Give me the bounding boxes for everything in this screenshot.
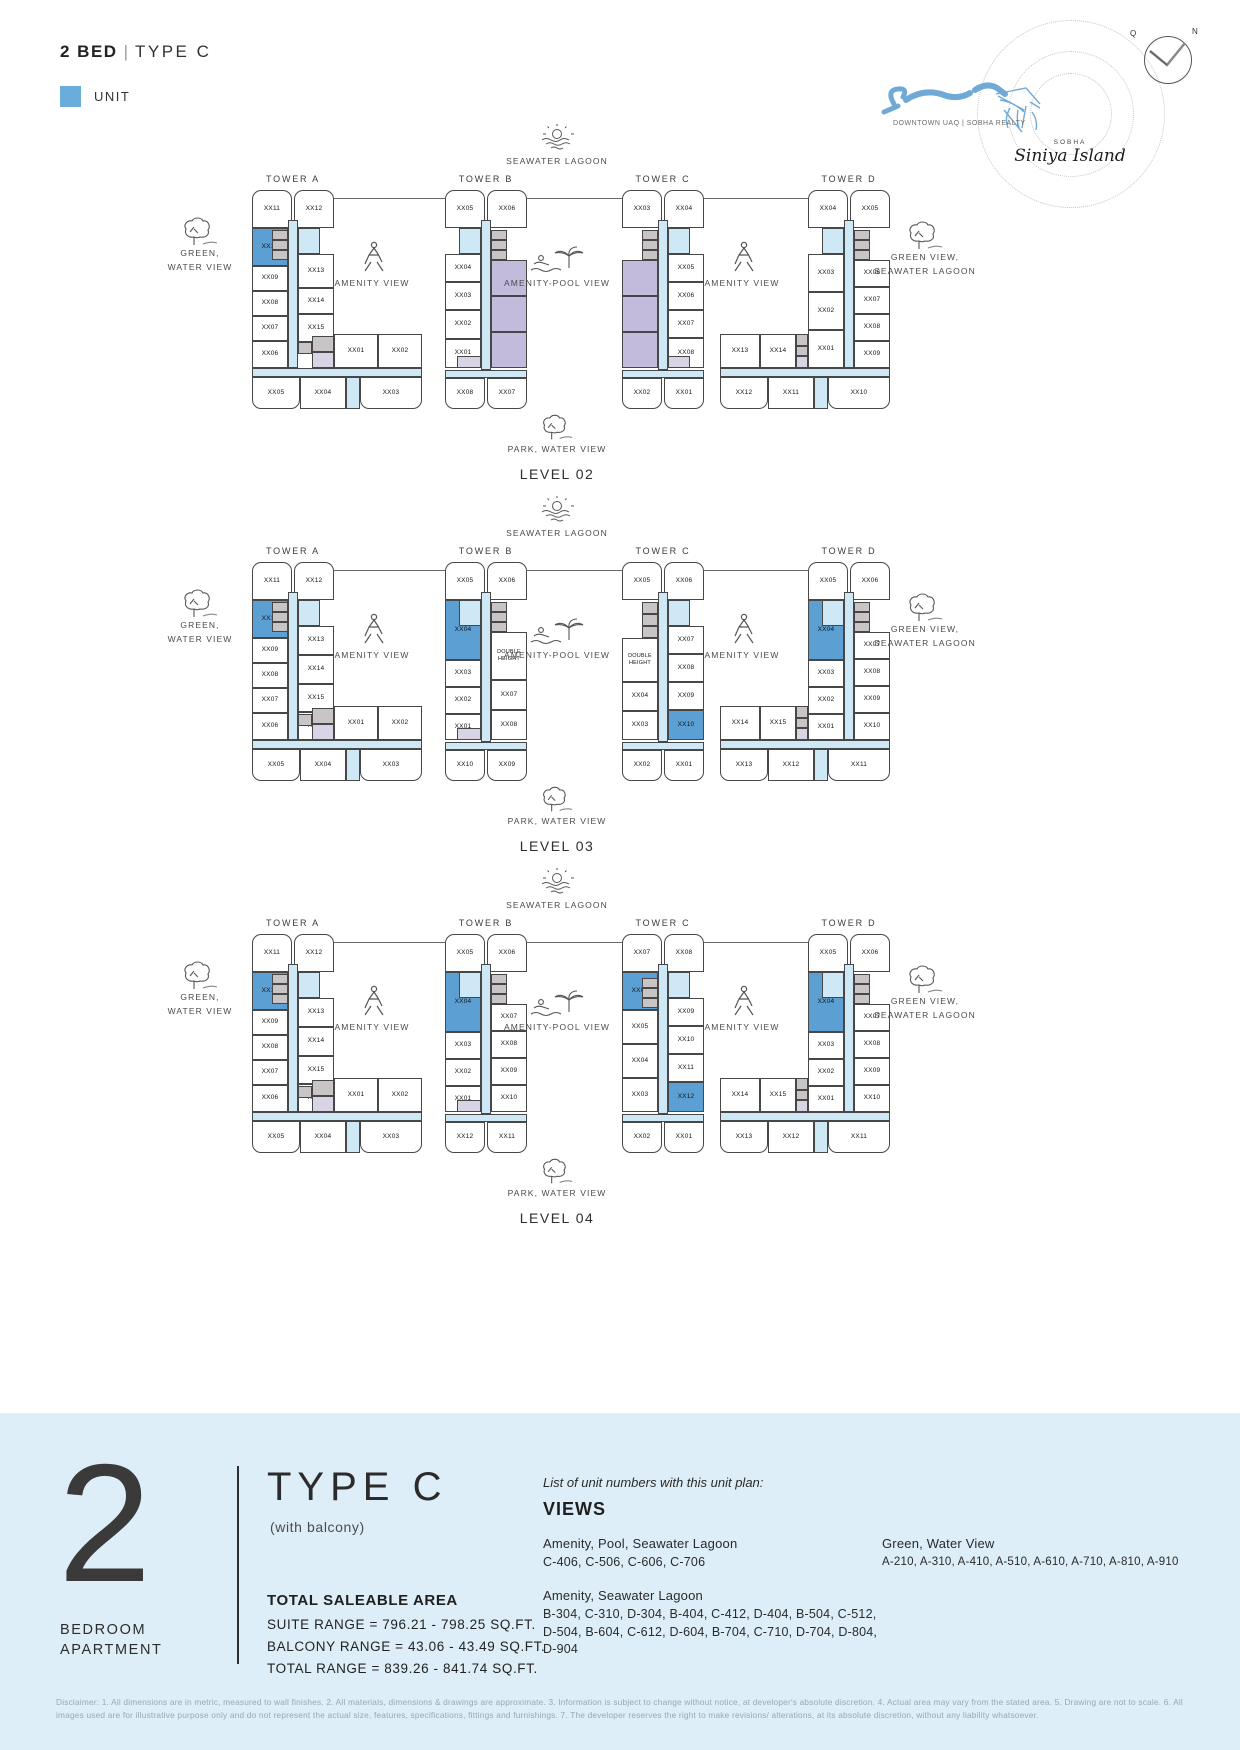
amenity-view-icon — [357, 984, 387, 1023]
unit-cell: XX02 — [808, 1059, 844, 1086]
amenity-view-label: AMENITY VIEW — [705, 1020, 780, 1034]
view-group-units: B-304, C-310, D-304, B-404, C-412, D-404… — [543, 1606, 888, 1659]
service-cell — [312, 1096, 334, 1112]
unit-cell: XX10 — [854, 713, 890, 740]
green-seawater-lagoon-view-label: GREEN VIEW, SEAWATER LAGOON — [874, 622, 976, 651]
service-cell — [642, 240, 658, 250]
unit-cell: XX10 — [491, 1085, 527, 1112]
bedroom-label-line1: BEDROOM — [60, 1622, 146, 1638]
unit-cell: XX05 — [622, 562, 662, 600]
unit-cell: XX02 — [378, 334, 422, 368]
amenity-view-label: AMENITY VIEW — [705, 276, 780, 290]
service-cell — [642, 978, 658, 988]
service-cell — [796, 1100, 808, 1112]
green-seawater-lagoon-view-label: GREEN VIEW, SEAWATER LAGOON — [874, 994, 976, 1023]
unit-cell: XX09 — [854, 1058, 890, 1085]
corridor-cell — [622, 742, 704, 750]
unit-cell: XX05 — [252, 377, 300, 409]
unit-cell: XX04 — [300, 1121, 346, 1153]
amenity-view-label: AMENITY VIEW — [335, 648, 410, 662]
service-cell — [642, 602, 658, 614]
corridor-cell — [459, 228, 481, 254]
corridor-cell — [720, 368, 890, 377]
green-seawater-lagoon-view-label: GREEN VIEW, SEAWATER LAGOON — [874, 250, 976, 279]
type-title: TYPE C — [267, 1465, 447, 1510]
corridor-cell — [844, 220, 854, 368]
unit-cell: XX09 — [487, 750, 527, 781]
unit-cell: XX09 — [252, 638, 288, 663]
service-cell — [298, 1086, 312, 1098]
unit-cell: XX11 — [828, 1121, 890, 1153]
unit-cell: XX07 — [668, 310, 704, 338]
unit-cell: XX12 — [294, 190, 334, 228]
service-cell — [854, 612, 870, 622]
unit-cell: XX01 — [334, 334, 378, 368]
corridor-cell — [298, 972, 320, 998]
corridor-cell — [481, 220, 491, 370]
unit-cell: XX07 — [252, 688, 288, 713]
unit-cell: XX05 — [808, 934, 848, 972]
logo-tagline: DOWNTOWN UAQ | SOBHA REALTY — [893, 120, 1026, 127]
highlighted-unit-cell: XX10 — [668, 710, 704, 740]
tower-plan: XX05XX06XX04XX03XX02XX01XX07XX08XX09XX10… — [445, 934, 527, 1153]
unit-cell: XX02 — [445, 687, 481, 714]
corridor-cell — [459, 972, 481, 998]
seawater-lagoon-icon — [535, 496, 579, 529]
service-cell — [854, 250, 870, 260]
green-water-view-label: GREEN, WATER VIEW — [168, 618, 233, 647]
corridor-cell — [668, 972, 690, 998]
unit-cell: XX11 — [252, 562, 292, 600]
unit-cell: XX06 — [487, 934, 527, 972]
unit-cell: XX03 — [622, 711, 658, 740]
service-cell — [854, 240, 870, 250]
unit-cell: XX08 — [668, 654, 704, 682]
service-cell — [642, 250, 658, 260]
unit-cell: XX02 — [622, 1122, 662, 1153]
unit-cell: XX11 — [252, 190, 292, 228]
balcony-range: BALCONY RANGE = 43.06 - 43.49 SQ.FT. — [267, 1639, 545, 1654]
tower-label: TOWER B — [459, 918, 513, 928]
service-cell — [622, 260, 658, 296]
unit-cell: XX02 — [378, 1078, 422, 1112]
unit-cell: XX02 — [445, 1059, 481, 1086]
corridor-cell — [822, 972, 844, 998]
level-name: LEVEL 02 — [520, 466, 595, 482]
tower-label: TOWER C — [636, 174, 691, 184]
unit-cell: XX08 — [445, 378, 485, 409]
unit-cell: XX07 — [622, 934, 662, 972]
unit-cell: XX06 — [664, 562, 704, 600]
unit-cell: XX13 — [298, 998, 334, 1027]
unit-cell: XX05 — [445, 934, 485, 972]
unit-cell: XX01 — [664, 378, 704, 409]
service-cell — [457, 1100, 481, 1112]
unit-cell: XX15 — [760, 706, 796, 740]
amenity-view-label: AMENITY VIEW — [335, 276, 410, 290]
view-group-units: C-406, C-506, C-606, C-706 — [543, 1554, 705, 1572]
service-cell — [796, 346, 808, 356]
service-cell — [642, 626, 658, 638]
unit-cell: XX07 — [252, 316, 288, 341]
unit-cell: XX05 — [668, 254, 704, 282]
unit-cell: XX14 — [720, 1078, 760, 1112]
unit-cell: XX01 — [334, 706, 378, 740]
service-cell — [491, 602, 507, 612]
unit-cell: XX09 — [491, 1058, 527, 1085]
tower-plan: XX05XX06DOUBLE HEIGHTXX04XX03XX07XX08XX0… — [622, 562, 704, 781]
corridor-cell — [844, 592, 854, 740]
unit-cell: XX14 — [760, 334, 796, 368]
unit-cell: XX01 — [808, 330, 844, 368]
service-cell — [491, 994, 507, 1004]
unit-cell: XX06 — [668, 282, 704, 310]
corridor-cell — [252, 740, 422, 749]
tower-label: TOWER D — [822, 918, 877, 928]
service-cell — [491, 984, 507, 994]
unit-cell: XX05 — [850, 190, 890, 228]
unit-cell: XX08 — [252, 663, 288, 688]
unit-cell: XX08 — [854, 314, 890, 341]
service-cell — [491, 250, 507, 260]
view-group-label: Amenity, Pool, Seawater Lagoon — [543, 1536, 737, 1551]
seawater-lagoon-label: SEAWATER LAGOON — [506, 526, 608, 540]
unit-cell: XX04 — [300, 749, 346, 781]
service-cell — [796, 706, 808, 718]
compass-icon — [1144, 36, 1192, 84]
corridor-cell — [252, 1112, 422, 1121]
corridor-cell — [622, 370, 704, 378]
amenity-view-icon — [357, 240, 387, 279]
unit-cell: XX03 — [360, 377, 422, 409]
unit-cell: XX09 — [668, 682, 704, 710]
boundary-line — [704, 942, 808, 943]
unit-cell: XX04 — [445, 254, 481, 282]
amenity-view-icon — [727, 612, 757, 651]
corridor-cell — [814, 749, 828, 781]
corridor-cell — [445, 1114, 527, 1122]
corridor-cell — [720, 1112, 890, 1121]
corridor-cell — [481, 964, 491, 1114]
corridor-cell — [252, 368, 422, 377]
service-cell — [642, 988, 658, 998]
park-water-view-label: PARK, WATER VIEW — [508, 814, 607, 828]
corridor-cell — [346, 377, 360, 409]
corridor-cell — [658, 964, 668, 1114]
saleable-area-title: TOTAL SALEABLE AREA — [267, 1592, 458, 1609]
unit-cell: XX14 — [720, 706, 760, 740]
unit-cell: XX13 — [720, 1121, 768, 1153]
unit-cell: XX14 — [298, 1027, 334, 1056]
service-cell — [854, 994, 870, 1004]
service-cell — [272, 602, 288, 612]
tower-plan: XX07XX08XX06XX05XX04XX03XX09XX10XX11XX12… — [622, 934, 704, 1153]
tower-plan: XX04XX05XX03XX02XX01XX06XX07XX08XX09XX13… — [808, 190, 890, 409]
suite-range: SUITE RANGE = 796.21 - 798.25 SQ.FT. — [267, 1617, 536, 1632]
corridor-cell — [288, 592, 298, 740]
bedroom-label-line2: APARTMENT — [60, 1642, 162, 1658]
service-cell — [491, 332, 527, 368]
service-cell — [668, 356, 690, 368]
amenity-view-label: AMENITY VIEW — [335, 1020, 410, 1034]
page-title-separator: | — [118, 42, 135, 61]
unit-cell: XX02 — [808, 292, 844, 330]
level-section: SEAWATER LAGOONTOWER AXX11XX12XX10XX09XX… — [0, 500, 1240, 872]
unit-cell: XX13 — [298, 626, 334, 655]
unit-cell: XX11 — [828, 749, 890, 781]
service-cell — [298, 342, 312, 354]
service-cell — [312, 336, 334, 352]
corridor-cell — [658, 220, 668, 370]
unit-cell: XX06 — [252, 713, 288, 740]
unit-cell: XX09 — [854, 686, 890, 713]
tower-plan: XX11XX12XX10XX09XX08XX07XX06XX13XX14XX15… — [252, 190, 334, 409]
service-cell — [642, 998, 658, 1008]
unit-cell: XX03 — [445, 282, 481, 310]
service-cell — [642, 614, 658, 626]
service-cell — [491, 622, 507, 632]
tower-plan: XX05XX06XX04XX03XX02XX01XX07XX08XX09XX10… — [808, 562, 890, 781]
unit-cell: XX08 — [854, 1031, 890, 1058]
bedroom-count: 2 — [58, 1439, 151, 1607]
unit-cell: XX14 — [298, 655, 334, 684]
tower-plan: XX05XX06XX04XX03XX02XX01XX08XX07 — [445, 190, 527, 409]
service-cell — [312, 1080, 334, 1096]
corridor-cell — [814, 377, 828, 409]
unit-cell: XX08 — [252, 1035, 288, 1060]
green-water-view-label: GREEN, WATER VIEW — [168, 990, 233, 1019]
unit-cell: XX04 — [622, 682, 658, 711]
page-title-type: TYPE C — [135, 42, 211, 61]
amenity-pool-view-label: AMENITY-POOL VIEW — [504, 1020, 610, 1034]
unit-cell: XX04 — [808, 190, 848, 228]
unit-cell: XX10 — [828, 377, 890, 409]
service-cell — [298, 714, 312, 726]
corridor-cell — [720, 740, 890, 749]
unit-cell: XX13 — [720, 749, 768, 781]
amenity-view-icon — [727, 984, 757, 1023]
service-cell — [796, 356, 808, 368]
service-cell — [272, 612, 288, 622]
unit-cell: XX10 — [445, 750, 485, 781]
unit-cell: XX09 — [252, 1010, 288, 1035]
unit-swatch-icon — [60, 86, 81, 107]
unit-cell: XX02 — [445, 310, 481, 339]
amenity-view-label: AMENITY VIEW — [705, 648, 780, 662]
park-water-view-label: PARK, WATER VIEW — [508, 1186, 607, 1200]
boundary-line — [334, 570, 445, 571]
unit-cell: XX08 — [664, 934, 704, 972]
view-group-label: Amenity, Seawater Lagoon — [543, 1588, 703, 1603]
unit-cell: XX05 — [252, 1121, 300, 1153]
total-range: TOTAL RANGE = 839.26 - 841.74 SQ.FT. — [267, 1661, 538, 1676]
tower-label: TOWER C — [636, 546, 691, 556]
tower-plan: XX05XX06XX04XX03XX02XX01XX07XX08XX09XX10… — [808, 934, 890, 1153]
unit-cell: DOUBLE HEIGHT — [622, 638, 658, 682]
service-cell — [491, 230, 507, 240]
unit-cell: XX10 — [854, 1085, 890, 1112]
disclaimer-text: Disclaimer: 1. All dimensions are in met… — [56, 1696, 1186, 1723]
unit-cell: XX06 — [850, 934, 890, 972]
unit-cell: XX06 — [850, 562, 890, 600]
corridor-cell — [668, 228, 690, 254]
view-group-label: Green, Water View — [882, 1536, 995, 1551]
unit-cell: XX11 — [768, 377, 814, 409]
corridor-cell — [822, 600, 844, 626]
unit-cell: XX07 — [668, 626, 704, 654]
service-cell — [272, 974, 288, 984]
unit-cell: XX08 — [491, 1031, 527, 1058]
service-cell — [796, 718, 808, 728]
seawater-lagoon-label: SEAWATER LAGOON — [506, 898, 608, 912]
unit-cell: XX11 — [252, 934, 292, 972]
unit-cell: XX12 — [720, 377, 768, 409]
views-title: VIEWS — [543, 1499, 606, 1520]
tower-label: TOWER A — [266, 546, 320, 556]
service-cell — [312, 724, 334, 740]
service-cell — [796, 1078, 808, 1090]
unit-cell: XX07 — [252, 1060, 288, 1085]
service-cell — [796, 728, 808, 740]
unit-cell: XX05 — [252, 749, 300, 781]
tower-label: TOWER A — [266, 918, 320, 928]
unit-cell: XX04 — [300, 377, 346, 409]
boundary-line — [527, 570, 622, 571]
unit-cell: XX02 — [808, 687, 844, 714]
tower-plan: XX11XX12XX10XX09XX08XX07XX06XX13XX14XX15… — [252, 934, 334, 1153]
tower-label: TOWER A — [266, 174, 320, 184]
service-cell — [642, 230, 658, 240]
tower-label: TOWER D — [822, 174, 877, 184]
amenity-view-icon — [727, 240, 757, 279]
unit-cell: XX09 — [854, 341, 890, 368]
corridor-cell — [844, 964, 854, 1112]
tower-plan: XX03XX04XX05XX06XX07XX08XX02XX01 — [622, 190, 704, 409]
page-title: 2 BED|TYPE C — [60, 42, 211, 62]
unit-cell: XX02 — [622, 750, 662, 781]
boundary-line — [527, 942, 622, 943]
tower-label: TOWER B — [459, 546, 513, 556]
compass-n-label: N — [1192, 27, 1198, 36]
level-name: LEVEL 03 — [520, 838, 595, 854]
unit-cell: XX09 — [252, 266, 288, 291]
corridor-cell — [822, 228, 844, 254]
tower-plan: XX11XX12XX10XX09XX08XX07XX06XX13XX14XX15… — [252, 562, 334, 781]
corridor-cell — [658, 592, 668, 742]
unit-cell: XX12 — [768, 1121, 814, 1153]
unit-cell: XX12 — [294, 562, 334, 600]
view-group-units: A-210, A-310, A-410, A-510, A-610, A-710… — [882, 1554, 1179, 1570]
boundary-line — [704, 570, 808, 571]
service-cell — [457, 728, 481, 740]
unit-cell: XX07 — [491, 680, 527, 710]
boundary-line — [334, 198, 445, 199]
service-cell — [854, 602, 870, 612]
compass-q-label: Q — [1130, 29, 1136, 38]
unit-legend-label: UNIT — [94, 89, 130, 104]
corridor-cell — [668, 600, 690, 626]
corridor-cell — [298, 600, 320, 626]
unit-cell: XX14 — [298, 288, 334, 314]
unit-cell: XX01 — [664, 750, 704, 781]
corridor-cell — [814, 1121, 828, 1153]
unit-cell: XX15 — [760, 1078, 796, 1112]
unit-cell: XX04 — [622, 1044, 658, 1078]
unit-cell: XX12 — [445, 1122, 485, 1153]
park-water-view-label: PARK, WATER VIEW — [508, 442, 607, 456]
unit-cell: XX03 — [360, 749, 422, 781]
corridor-cell — [622, 1114, 704, 1122]
type-subtitle: (with balcony) — [270, 1519, 365, 1535]
corridor-cell — [288, 964, 298, 1112]
service-cell — [312, 708, 334, 724]
unit-cell: XX05 — [445, 190, 485, 228]
unit-cell: XX01 — [334, 1078, 378, 1112]
unit-cell: XX08 — [252, 291, 288, 316]
unit-cell: XX04 — [664, 190, 704, 228]
unit-cell: XX13 — [720, 334, 760, 368]
service-cell — [457, 356, 481, 368]
vertical-divider — [237, 1466, 239, 1664]
seawater-lagoon-icon — [535, 124, 579, 157]
service-cell — [272, 622, 288, 632]
unit-cell: XX07 — [854, 287, 890, 314]
unit-cell: XX11 — [487, 1122, 527, 1153]
brochure-page: 2 BED|TYPE C UNIT DOWNTOWN UAQ | SOBHA R… — [0, 0, 1240, 1750]
unit-cell: XX07 — [487, 378, 527, 409]
service-cell — [796, 334, 808, 346]
service-cell — [622, 332, 658, 368]
unit-cell: XX03 — [445, 1032, 481, 1059]
unit-cell: XX09 — [668, 998, 704, 1026]
seawater-lagoon-icon — [535, 868, 579, 901]
unit-cell: XX03 — [622, 190, 662, 228]
level-section: SEAWATER LAGOONTOWER AXX11XX12XX10XX09XX… — [0, 872, 1240, 1244]
page-title-bold: 2 BED — [60, 42, 118, 61]
service-cell — [312, 352, 334, 368]
level-section: SEAWATER LAGOONTOWER AXX11XX12XX10XX09XX… — [0, 128, 1240, 500]
unit-cell: XX01 — [808, 1086, 844, 1112]
corridor-cell — [445, 370, 527, 378]
corridor-cell — [346, 1121, 360, 1153]
amenity-pool-view-label: AMENITY-POOL VIEW — [504, 276, 610, 290]
service-cell — [796, 1090, 808, 1100]
service-cell — [622, 296, 658, 332]
unit-cell: XX03 — [808, 1032, 844, 1059]
service-cell — [272, 984, 288, 994]
tower-label: TOWER C — [636, 918, 691, 928]
unit-cell: XX01 — [664, 1122, 704, 1153]
corridor-cell — [298, 228, 320, 254]
unit-cell: XX12 — [294, 934, 334, 972]
amenity-pool-view-label: AMENITY-POOL VIEW — [504, 648, 610, 662]
service-cell — [854, 984, 870, 994]
corridor-cell — [445, 742, 527, 750]
unit-cell: XX13 — [298, 254, 334, 288]
boundary-line — [704, 198, 808, 199]
service-cell — [272, 250, 288, 260]
unit-cell: XX05 — [445, 562, 485, 600]
service-cell — [491, 296, 527, 332]
service-cell — [854, 622, 870, 632]
corridor-cell — [459, 600, 481, 626]
service-cell — [272, 230, 288, 240]
service-cell — [272, 994, 288, 1004]
tower-plan: XX05XX06XX04XX03XX02XX01DOUBLE HEIGHTXX0… — [445, 562, 527, 781]
footer-panel: 2 BEDROOM APARTMENT TYPE C (with balcony… — [0, 1413, 1240, 1750]
unit-cell: XX08 — [491, 710, 527, 740]
unit-cell: XX02 — [622, 378, 662, 409]
